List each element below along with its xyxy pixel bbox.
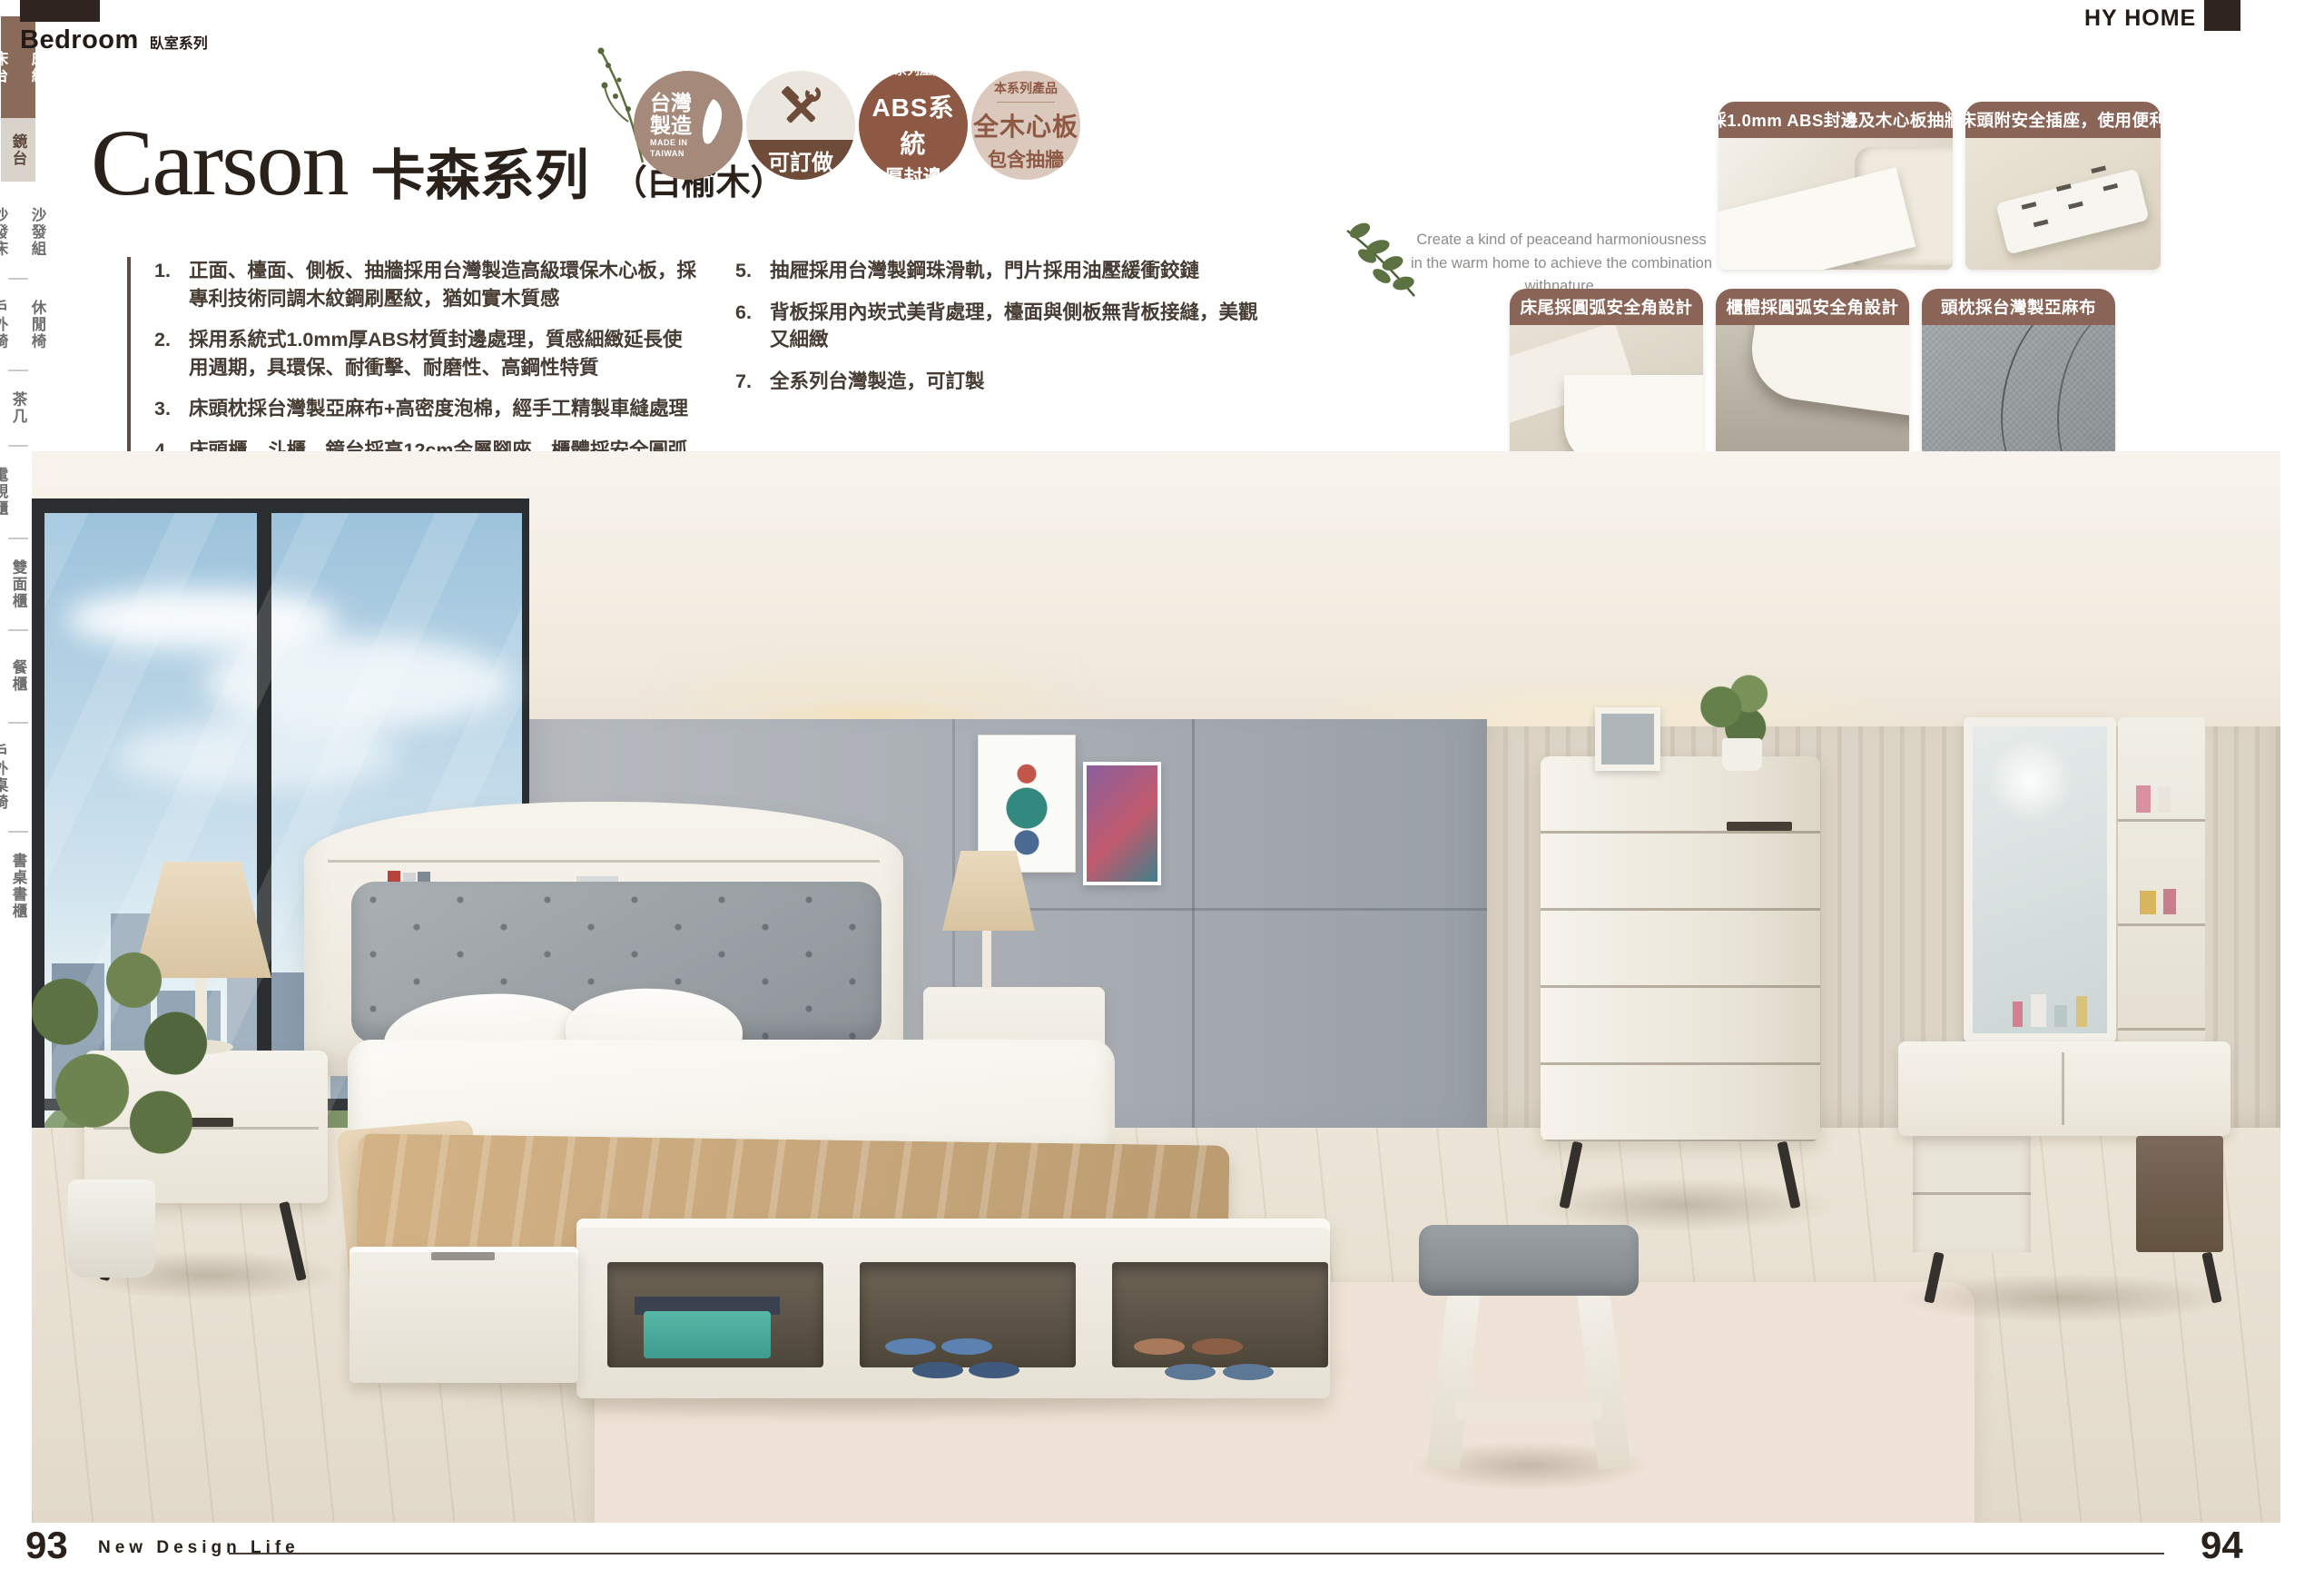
badge-en-line: TAIWAN xyxy=(650,150,684,158)
slippers xyxy=(1134,1338,1185,1355)
vanity-open-shelf xyxy=(1913,1136,2031,1252)
feature-item: 2. 採用系統式1.0mm厚ABS材質封邊處理，質感細緻延長使用週期，具環保、耐… xyxy=(154,326,699,381)
bed-corner-round xyxy=(1564,375,1703,457)
drawer-handle xyxy=(431,1252,495,1260)
callout-linen-fabric: 頭枕採台灣製亞麻布 xyxy=(1922,289,2115,457)
sidebar-label: 戶外桌椅 xyxy=(0,744,10,811)
cabinet-corner-shape xyxy=(1746,325,1909,420)
sidebar-label: 電視櫃 xyxy=(0,467,10,518)
section-header: Bedroom 臥室系列 xyxy=(20,25,208,55)
storage-cubby xyxy=(860,1262,1076,1367)
sidebar-label: 書桌書櫃 xyxy=(7,853,29,920)
sidebar-divider xyxy=(8,370,28,371)
sidebar-label: 休閒椅 xyxy=(26,300,48,350)
feature-text: 背板採用內崁式美背處理，檯面與側板無背板接縫，美觀又細緻 xyxy=(770,299,1271,354)
cosmetic-bottle xyxy=(2136,785,2151,813)
cosmetic-bottle xyxy=(2140,891,2156,914)
brand-logo: HY HOME xyxy=(2084,5,2196,32)
sidebar-item-mirror-stand[interactable]: 鏡台 xyxy=(1,118,35,182)
callout-caption: 櫃體採圓弧安全角設計 xyxy=(1716,289,1909,325)
callout-image-socket xyxy=(1965,138,2161,270)
brand-accent-block xyxy=(2204,0,2240,31)
page-number-left: 93 xyxy=(25,1524,68,1567)
stool-crossbar xyxy=(1455,1401,1602,1419)
feature-number: 7. xyxy=(735,368,763,396)
storage-cubby xyxy=(607,1262,823,1367)
callout-cabinet-corner: 櫃體採圓弧安全角設計 xyxy=(1716,289,1909,457)
bed-storage-footboard xyxy=(576,1219,1330,1398)
section-title-zh: 臥室系列 xyxy=(150,31,208,53)
sidebar-item-sofa[interactable]: 沙發組 沙發床 xyxy=(0,207,48,258)
feature-item: 3. 床頭枕採台灣製亞麻布+高密度泡棉，經手工精製車縫處理 xyxy=(154,395,699,423)
sidebar-label: 茶几 xyxy=(7,391,29,425)
sidebar-item-desk-bookcase[interactable]: 書桌書櫃 xyxy=(7,853,29,920)
callout-image-cabinet-corner xyxy=(1716,325,1909,457)
catalog-page: Bedroom 臥室系列 HY HOME Carson 卡森系列 （白榆木） 台… xyxy=(0,0,2324,1579)
sidebar-label: 沙發組 xyxy=(26,207,48,258)
callout-power-socket: 床頭附安全插座，使用便利 xyxy=(1965,102,2161,270)
feature-number: 3. xyxy=(154,395,182,423)
sidebar-divider xyxy=(8,629,28,631)
sidebar-item-tea-table[interactable]: 茶几 xyxy=(7,391,29,425)
page-number-right: 94 xyxy=(2201,1524,2243,1567)
sidebar-item-lounge-chair[interactable]: 休閒椅 戶外椅 xyxy=(0,300,48,350)
vanity-door xyxy=(2136,1136,2223,1252)
sidebar-label: 餐櫃 xyxy=(7,659,29,693)
stored-box-teal xyxy=(644,1311,771,1358)
feature-number: 6. xyxy=(735,299,763,354)
feature-item: 1. 正面、檯面、側板、抽牆採用台灣製造高級環保木心板，採專利技術同調木紋鋼刷壓… xyxy=(154,257,699,312)
badge-label: 可訂做 xyxy=(768,144,833,176)
sidebar-divider xyxy=(8,722,28,724)
feature-text: 全系列台灣製造，可訂製 xyxy=(770,368,985,396)
section-title-en: Bedroom xyxy=(20,25,139,55)
vanity-shelf-column xyxy=(2118,717,2205,1042)
badge-sub-line: 厚封邊 xyxy=(885,163,942,180)
shadow xyxy=(1893,1273,2238,1323)
callout-caption: 床尾採圓弧安全角設計 xyxy=(1510,289,1703,325)
badge-zh-line: 台灣 xyxy=(650,92,692,113)
category-sidebar: 床組 床台 鏡台 沙發組 沙發床 休閒椅 戶外椅 茶几 展示櫃 電視櫃 玄關桌 … xyxy=(0,0,36,1579)
panel-seam xyxy=(1192,719,1195,1178)
cosmetic-bottle xyxy=(2163,889,2176,914)
panel-seam xyxy=(952,908,1487,911)
callout-image-linen xyxy=(1922,325,2115,457)
badge-made-in-taiwan: 台灣 製造 MADE IN TAIWAN xyxy=(634,71,743,180)
sidebar-divider xyxy=(8,445,28,447)
feature-number: 5. xyxy=(735,257,763,285)
drawer-handle xyxy=(1727,822,1792,831)
callout-drawer-edge: 採1.0mm ABS封邊及木心板抽牆 xyxy=(1718,102,1953,270)
sidebar-label: 床台 xyxy=(0,51,10,84)
sidebar-divider xyxy=(8,538,28,539)
wall-art xyxy=(1083,762,1161,885)
badge-abs-system: 本系列產品 ABS系統 厚封邊 xyxy=(859,71,968,180)
sidebar-label: 鏡台 xyxy=(7,133,29,167)
stool-cushion xyxy=(1419,1225,1639,1296)
badge-band: 可訂做 xyxy=(746,140,855,180)
sidebar-label: 雙面櫃 xyxy=(7,559,29,610)
badge-text-stack: 台灣 製造 MADE IN TAIWAN xyxy=(650,92,692,158)
potted-plant xyxy=(32,938,228,1201)
footer-rule xyxy=(229,1553,2164,1554)
badge-zh-line: 製造 xyxy=(650,114,692,136)
storage-cubby xyxy=(1112,1262,1328,1367)
feature-item: 5. 抽屜採用台灣製鋼珠滑軌，門片採用油壓緩衝鉸鏈 xyxy=(735,257,1271,285)
chest-of-drawers xyxy=(1541,756,1820,1141)
feature-number: 1. xyxy=(154,257,182,312)
series-name-en: Carson xyxy=(91,116,348,211)
art-print xyxy=(990,746,1064,861)
badge-main-line: ABS系統 xyxy=(859,88,968,161)
lamp-stand xyxy=(982,931,991,989)
bed-side-drawer xyxy=(350,1247,578,1383)
badge-solid-wood-board: 本系列產品 全木心板 包含抽牆 xyxy=(971,71,1080,180)
feature-text: 抽屜採用台灣製鋼珠滑軌，門片採用油壓緩衝鉸鏈 xyxy=(770,257,1199,285)
feature-item: 7. 全系列台灣製造，可訂製 xyxy=(735,368,1271,396)
cosmetic-bottle xyxy=(2054,1005,2067,1027)
callout-caption: 採1.0mm ABS封邊及木心板抽牆 xyxy=(1718,102,1953,138)
room-photo xyxy=(32,451,2280,1523)
plant-pot xyxy=(68,1179,155,1278)
callout-caption: 床頭附安全插座，使用便利 xyxy=(1965,102,2161,138)
sidebar-label: 戶外椅 xyxy=(0,300,10,350)
plant-pot xyxy=(1722,738,1762,771)
cosmetic-bottle xyxy=(2031,994,2046,1027)
vanity-table xyxy=(1898,1041,2230,1136)
badge-en-line: MADE IN xyxy=(650,139,688,147)
taiwan-island-icon xyxy=(695,97,726,153)
badge-rule xyxy=(997,102,1055,103)
callout-image-bed-corner xyxy=(1510,325,1703,457)
sidebar-label: 床組 xyxy=(26,51,48,84)
badge-main-line: 全木心板 xyxy=(973,107,1078,143)
badge-top-line: 本系列產品 xyxy=(881,71,945,79)
callout-caption: 頭枕採台灣製亞麻布 xyxy=(1922,289,2115,325)
cosmetic-bottle xyxy=(2076,996,2087,1027)
tools-icon xyxy=(778,84,823,130)
badge-sub-line: 包含抽牆 xyxy=(988,145,1064,173)
corner-accent-block xyxy=(20,0,100,22)
footer-tagline: New Design Life xyxy=(98,1538,300,1558)
feature-text: 正面、檯面、側板、抽牆採用台灣製造高級環保木心板，採專利技術同調木紋鋼刷壓紋，猶… xyxy=(189,257,699,312)
cosmetic-bottle xyxy=(2158,787,2171,813)
feature-item: 6. 背板採用內崁式美背處理，檯面與側板無背板接縫，美觀又細緻 xyxy=(735,299,1271,354)
socket-strip-shape xyxy=(1995,169,2149,255)
sidebar-divider xyxy=(8,831,28,833)
callout-bed-corner: 床尾採圓弧安全角設計 xyxy=(1510,289,1703,457)
mirror-reflection xyxy=(1989,739,2073,823)
feature-number: 2. xyxy=(154,326,182,381)
quote-line: Create a kind of peaceand harmoniousness xyxy=(1403,229,1720,252)
shelf-divider xyxy=(1913,1192,2031,1195)
feature-text: 床頭枕採台灣製亞麻布+高密度泡棉，經手工精製車縫處理 xyxy=(189,395,688,423)
badge-top-line: 本系列產品 xyxy=(994,79,1058,97)
badge-customizable: 可訂做 xyxy=(746,71,855,180)
sidebar-divider xyxy=(8,278,28,280)
slippers xyxy=(885,1338,936,1355)
drawer-seam xyxy=(2062,1052,2064,1125)
sidebar-label: 沙發床 xyxy=(0,207,10,258)
headboard-shelf xyxy=(328,860,880,863)
series-name-zh: 卡森系列 xyxy=(371,132,589,211)
callout-image-drawer xyxy=(1718,138,1953,270)
photo-frame xyxy=(1595,707,1660,771)
cosmetic-bottle xyxy=(2013,1002,2023,1027)
feature-text: 採用系統式1.0mm厚ABS材質封邊處理，質感細緻延長使用週期，具環保、耐衝擊、… xyxy=(189,326,699,381)
